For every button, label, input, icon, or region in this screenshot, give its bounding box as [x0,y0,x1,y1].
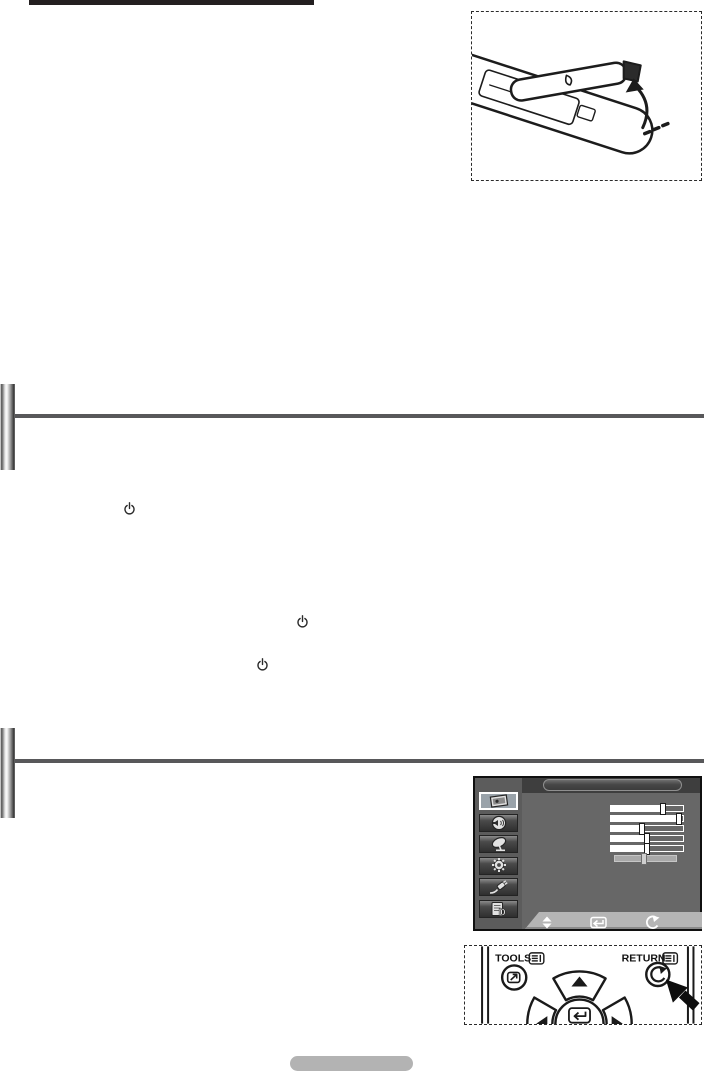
power-icon [296,615,309,629]
tv-menu-screenshot: D [473,776,702,931]
menu-title-pill [543,779,682,791]
menu-slider [610,845,684,852]
menu-slider [610,825,684,832]
menu-sidebar: D [479,792,518,921]
remote-buttons-figure: TOOLS RETURN [464,945,702,1025]
tools-label: TOOLS [495,952,531,964]
menu-item-sound-icon [479,814,518,832]
remote-body [472,36,658,159]
slider-handle [660,803,666,815]
remote-closeup-illustration: TOOLS RETURN [465,946,701,1024]
menu-sliders [610,805,690,865]
svg-text:D: D [498,907,505,917]
menu-list-icon [529,953,544,964]
menu-item-picture-icon [479,792,518,810]
slider-handle [676,813,682,825]
tools-button-icon [502,965,526,989]
cover-latch [624,61,641,81]
menu-item-digital-menu-icon: D [479,900,518,918]
manual-page: D [0,0,704,1083]
return-button-icon [646,963,669,986]
enter-icon [591,918,606,928]
section-heading-bar-2 [0,728,15,818]
menu-slider [614,855,677,862]
section-heading-rule-2 [15,759,704,763]
remote-battery-illustration [472,12,701,180]
page-number-badge [290,1056,413,1071]
menu-item-channel-icon [479,835,518,853]
navigate-updown-icon [543,917,552,929]
section-heading-rule-1 [15,414,704,418]
menu-item-input-icon [479,878,518,896]
battery-cover-figure [471,11,702,181]
title-underline [29,0,314,5]
menu-slider [610,835,684,842]
menu-slider [610,815,684,822]
section-heading-bar-1 [0,384,15,470]
menu-item-setup-icon [479,857,518,875]
power-icon [123,502,136,516]
power-icon [256,658,269,672]
menu-slider [610,805,684,812]
menu-footer-nav-icons [523,914,702,931]
slider-handle [641,853,647,865]
return-icon [647,916,660,929]
